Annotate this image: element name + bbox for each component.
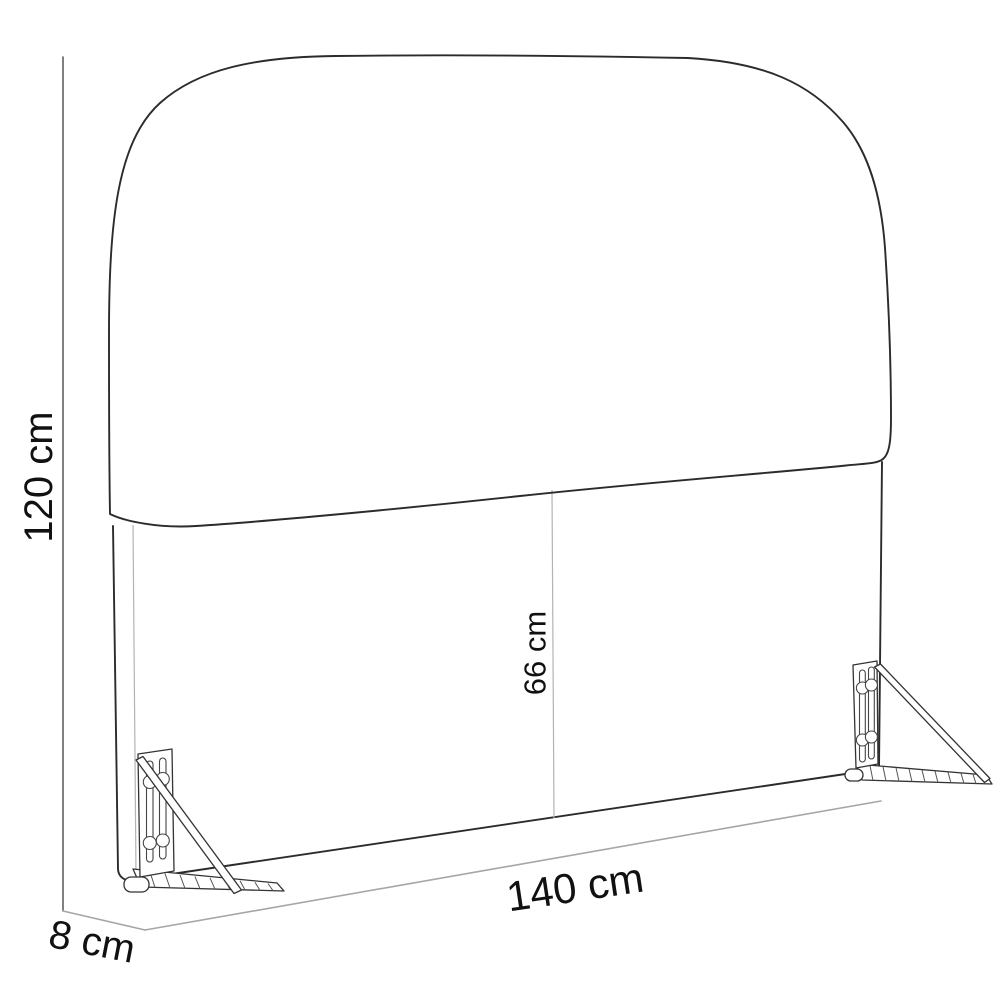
- left-bracket: [133, 749, 284, 894]
- panel-seams: [133, 490, 554, 875]
- right-foot-glide: [845, 769, 863, 781]
- diagram-canvas: 120 cm 66 cm 140 cm 8 cm: [0, 0, 1000, 1000]
- panel-left-seam: [133, 525, 136, 875]
- headboard-dimension-diagram: 120 cm 66 cm 140 cm 8 cm: [0, 0, 1000, 1000]
- dimension-lines: [63, 57, 881, 930]
- height-dimension-label: 120 cm: [17, 411, 61, 542]
- left-foot-glide: [124, 877, 149, 892]
- right-bracket-bolt: [865, 679, 877, 691]
- right-bracket-bolt: [865, 731, 877, 743]
- headboard-cushion-outline: [109, 55, 891, 526]
- right-bracket-diagonal-brace: [875, 664, 991, 783]
- depth-dimension-label: 8 cm: [45, 912, 138, 972]
- panel-height-dimension-label: 66 cm: [518, 611, 553, 695]
- headboard-panel-outline: [113, 462, 882, 881]
- left-bracket-bolt: [143, 837, 156, 850]
- right-bracket: [853, 661, 992, 784]
- left-bracket-bolt: [156, 834, 169, 847]
